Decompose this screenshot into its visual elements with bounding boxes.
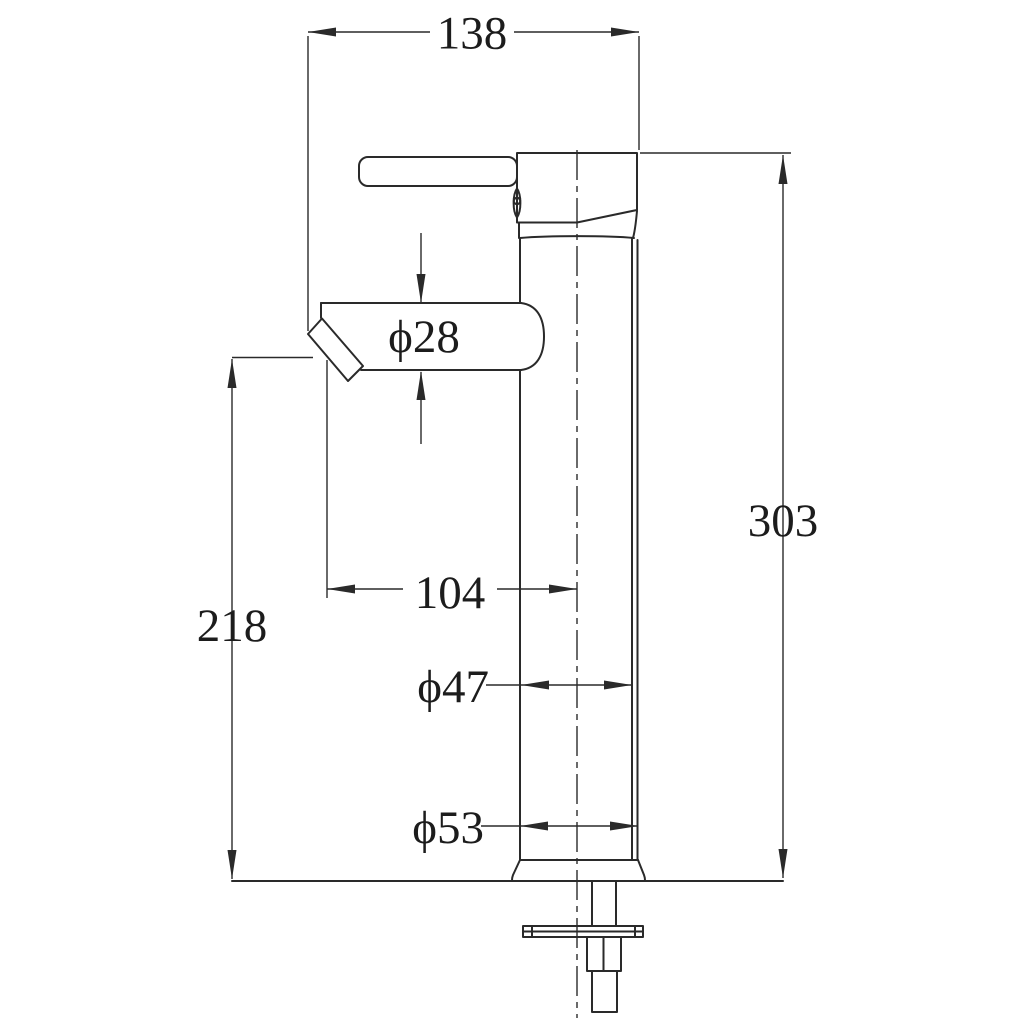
faucet-dimension-diagram: 138 303 218 ϕ28 104 ϕ47 <box>0 0 1024 1024</box>
dim-label-overall-height: 303 <box>748 495 819 547</box>
dim-label-base-diameter: ϕ53 <box>412 802 484 854</box>
technical-drawing-canvas: 138 303 218 ϕ28 104 ϕ47 <box>0 0 1024 1024</box>
dim-label-spout-reach: 104 <box>415 567 486 619</box>
dim-label-top-width: 138 <box>437 8 508 60</box>
dim-label-spout-diameter: ϕ28 <box>388 311 460 363</box>
drawing-background <box>0 0 1024 1024</box>
dim-label-spout-height: 218 <box>197 600 268 652</box>
dim-label-body-diameter: ϕ47 <box>417 661 489 713</box>
